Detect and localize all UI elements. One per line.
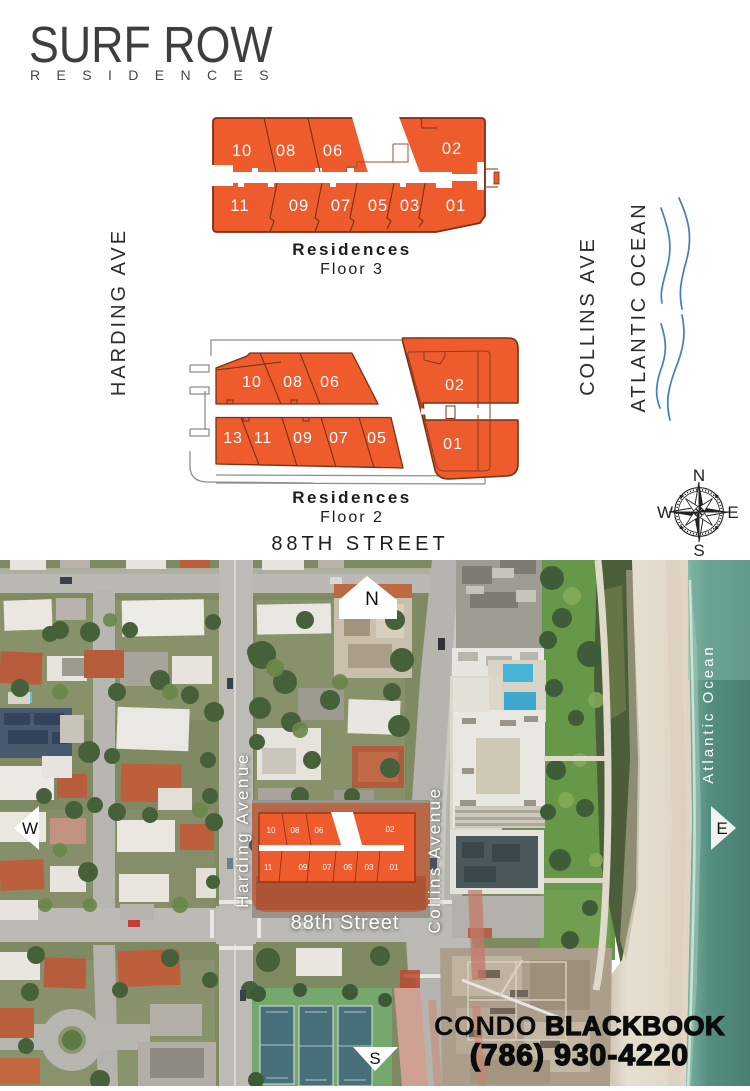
svg-text:07: 07 — [323, 863, 332, 872]
svg-text:W: W — [22, 819, 38, 838]
svg-text:Collins Avenue: Collins Avenue — [425, 786, 444, 933]
svg-text:10: 10 — [232, 142, 252, 160]
svg-text:03: 03 — [365, 863, 374, 872]
svg-text:COLLINS AVE: COLLINS AVE — [577, 236, 599, 395]
svg-text:E: E — [727, 503, 738, 522]
svg-text:07: 07 — [329, 430, 349, 447]
svg-text:06: 06 — [323, 142, 343, 160]
svg-text:05: 05 — [344, 863, 353, 872]
svg-text:08: 08 — [276, 142, 296, 160]
svg-text:Atlantic Ocean: Atlantic Ocean — [700, 644, 717, 784]
svg-text:E: E — [716, 819, 727, 838]
svg-text:W: W — [657, 503, 673, 522]
svg-text:11: 11 — [264, 863, 273, 872]
svg-text:09: 09 — [299, 863, 308, 872]
svg-text:01: 01 — [443, 436, 463, 453]
svg-text:05: 05 — [367, 430, 387, 447]
svg-text:S: S — [369, 1049, 380, 1068]
svg-text:ATLANTIC OCEAN: ATLANTIC OCEAN — [628, 201, 650, 412]
svg-text:88th Street: 88th Street — [291, 912, 400, 934]
svg-text:HARDING AVE: HARDING AVE — [108, 228, 130, 396]
svg-text:09: 09 — [293, 430, 313, 447]
svg-text:02: 02 — [386, 825, 395, 834]
svg-text:10: 10 — [267, 826, 276, 835]
svg-text:Harding Avenue: Harding Avenue — [233, 752, 252, 908]
svg-text:08: 08 — [291, 826, 300, 835]
svg-text:N: N — [693, 466, 705, 485]
svg-text:01: 01 — [390, 863, 399, 872]
svg-text:S: S — [693, 541, 704, 560]
svg-text:11: 11 — [254, 430, 273, 447]
svg-text:13: 13 — [223, 430, 243, 447]
svg-text:N: N — [365, 589, 379, 610]
svg-text:02: 02 — [442, 140, 462, 158]
svg-text:06: 06 — [315, 826, 324, 835]
